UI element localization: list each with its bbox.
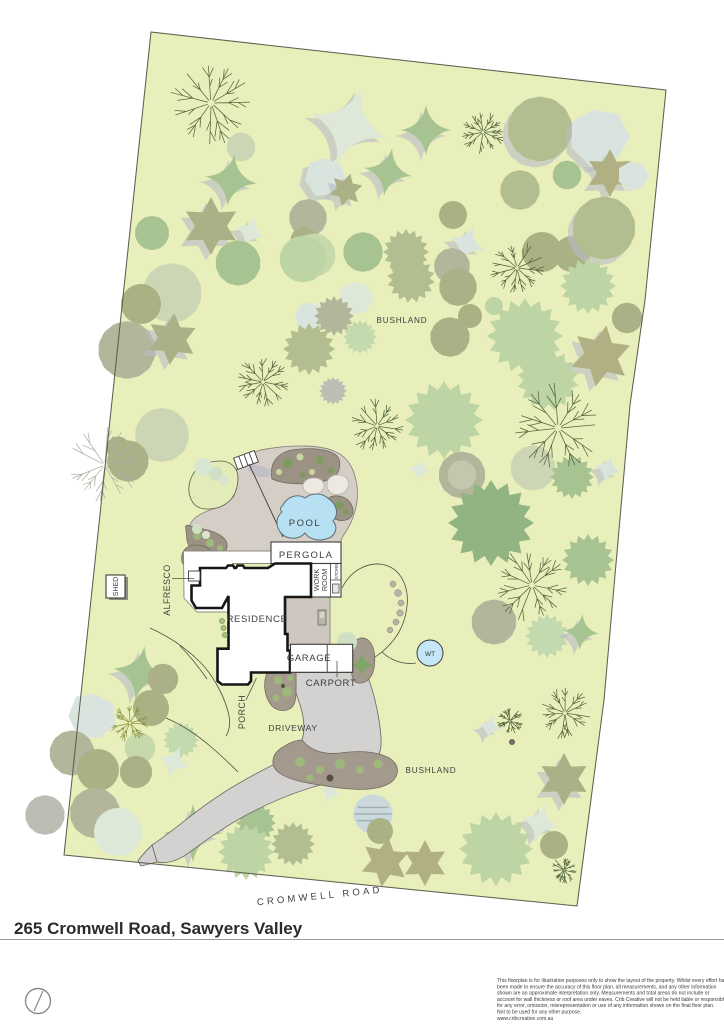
svg-text:PORCH: PORCH (237, 695, 247, 729)
svg-text:for any error, omission, misre: for any error, omission, misrepresentati… (497, 1003, 714, 1009)
svg-text:This floorplan is for illustra: This floorplan is for illustration purpo… (497, 978, 724, 984)
svg-text:WT: WT (425, 651, 435, 658)
svg-text:STORE: STORE (334, 564, 339, 580)
svg-text:www.cribcreative.com.au: www.cribcreative.com.au (497, 1016, 553, 1022)
svg-text:Not to be used for any other p: Not to be used for any other purpose. (497, 1010, 581, 1016)
svg-text:SHED: SHED (113, 577, 120, 596)
svg-text:been made to ensure the accura: been made to ensure the accuracy of this… (497, 984, 717, 990)
svg-text:POOL: POOL (289, 518, 321, 529)
svg-text:account for wall thickness or: account for wall thickness or roof area … (497, 997, 724, 1003)
svg-text:GARAGE: GARAGE (287, 653, 331, 664)
svg-text:ROOM: ROOM (320, 569, 329, 591)
svg-text:CARPORT: CARPORT (306, 678, 356, 689)
svg-text:BUSHLAND: BUSHLAND (377, 316, 428, 325)
svg-text:shown are an approximate inter: shown are an approximate interpretation … (497, 991, 710, 997)
svg-text:265 Cromwell Road, Sawyers Val: 265 Cromwell Road, Sawyers Valley (14, 919, 303, 938)
svg-text:RESIDENCE: RESIDENCE (227, 614, 288, 625)
svg-text:DRIVEWAY: DRIVEWAY (268, 723, 317, 733)
svg-text:PERGOLA: PERGOLA (279, 550, 333, 561)
svg-text:ALFRESCO: ALFRESCO (162, 564, 172, 615)
svg-text:BUSHLAND: BUSHLAND (406, 766, 457, 775)
